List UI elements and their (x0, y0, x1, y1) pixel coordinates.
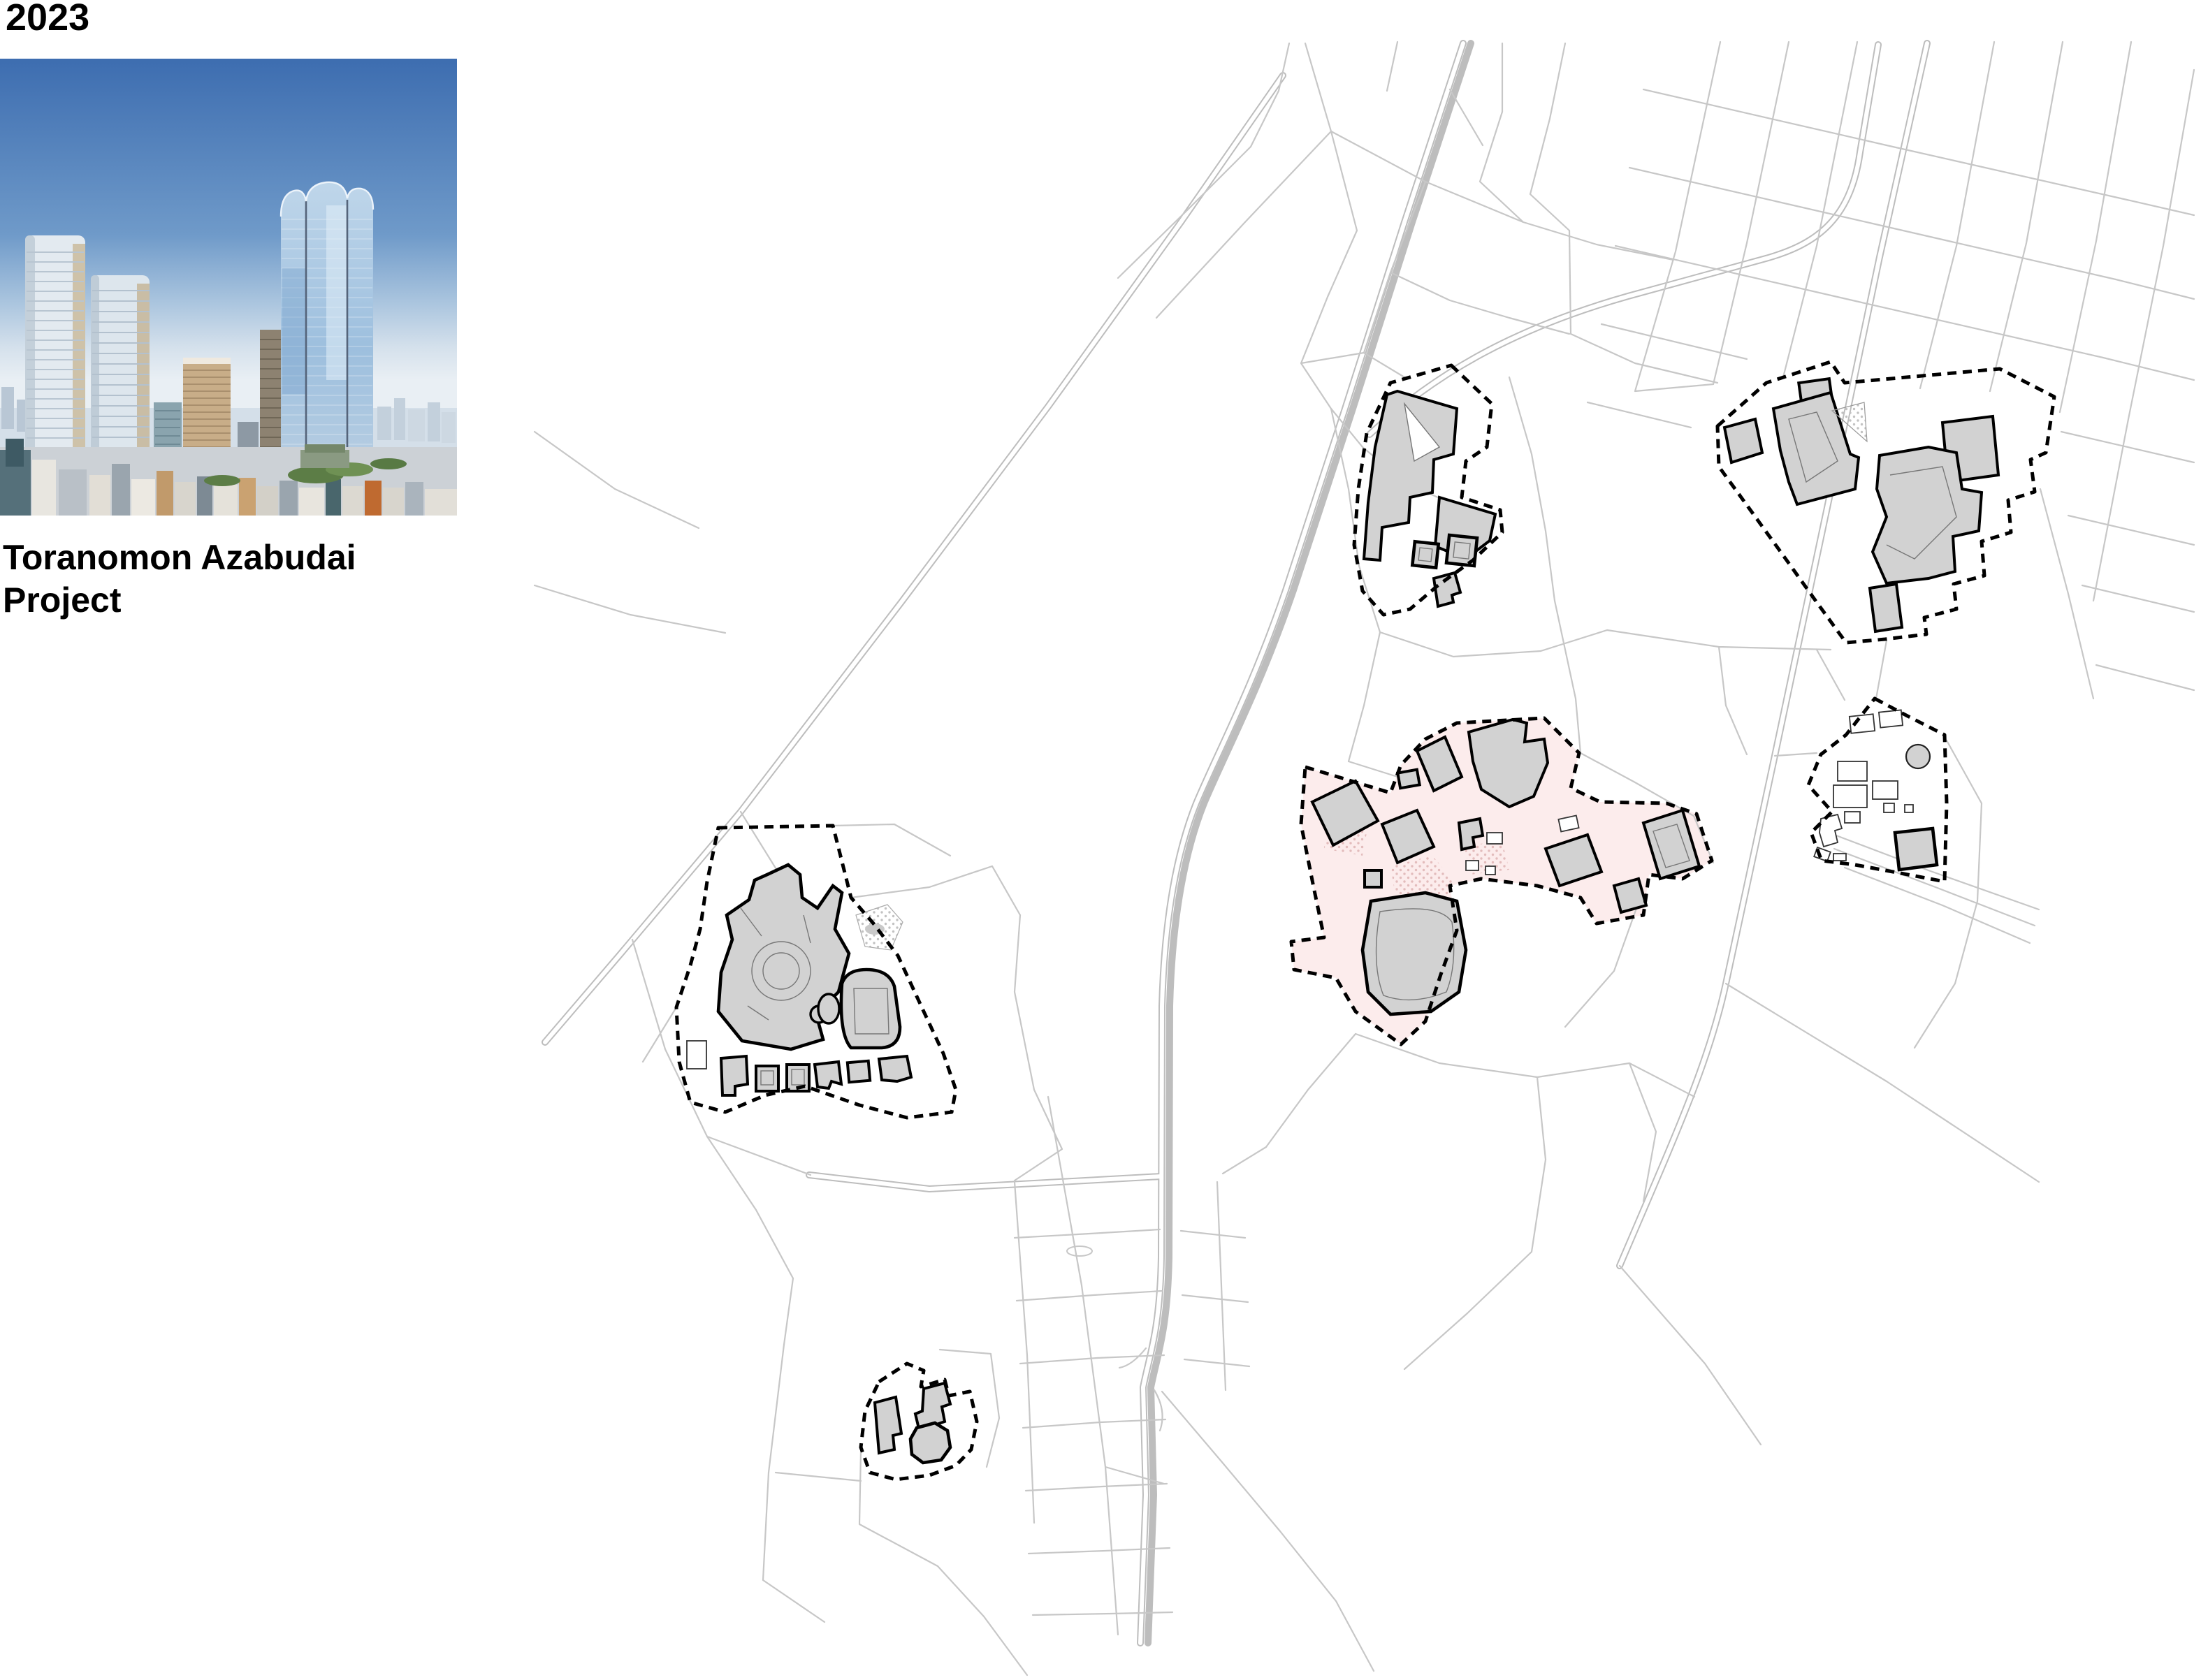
streets-top-center (1118, 42, 1717, 447)
district-left (676, 826, 956, 1118)
district-top-center (1354, 365, 1502, 615)
major-roads (545, 43, 1927, 1643)
district-map (0, 0, 2201, 1677)
district-right (1808, 699, 1947, 882)
district-top-right (1717, 362, 2054, 643)
district-bottom (861, 1364, 977, 1480)
pond-outline (1067, 1246, 1092, 1256)
streets-left (535, 432, 1062, 1675)
district-map-art (0, 0, 2201, 1677)
